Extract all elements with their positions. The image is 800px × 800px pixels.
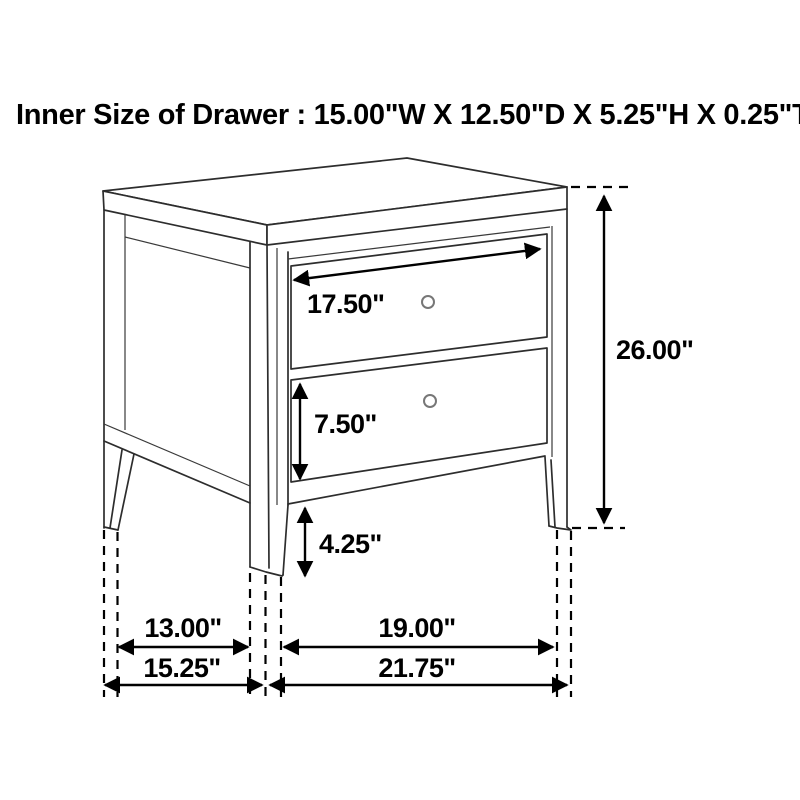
nightstand-side-panel bbox=[104, 210, 269, 568]
page-title: Inner Size of Drawer : 15.00"W X 12.50"D… bbox=[16, 99, 800, 131]
nightstand-drawing bbox=[103, 158, 571, 576]
front-right-leg-taper-b bbox=[551, 460, 555, 527]
drawer-top-knob bbox=[422, 296, 434, 308]
side-rail-top-line bbox=[104, 424, 250, 486]
label-front-leg-spacing: 19.00" bbox=[378, 613, 455, 643]
label-overall-depth: 15.25" bbox=[143, 653, 220, 683]
nightstand-top bbox=[103, 158, 567, 245]
dimension-diagram: Inner Size of Drawer : 15.00"W X 12.50"D… bbox=[0, 0, 800, 800]
label-overall-height: 26.00" bbox=[616, 335, 693, 365]
back-left-leg-bottom bbox=[104, 527, 118, 530]
label-overall-width: 21.75" bbox=[378, 653, 455, 683]
front-left-leg-taper bbox=[283, 505, 288, 575]
label-drawer-height: 7.50" bbox=[314, 409, 377, 439]
front-right-leg-bottom bbox=[549, 526, 571, 530]
label-drawer-width: 17.50" bbox=[307, 289, 384, 319]
nightstand-front bbox=[277, 209, 567, 527]
label-leg-height: 4.25" bbox=[319, 529, 382, 559]
front-right-leg-taper-a bbox=[545, 457, 549, 526]
corner-post-front-edge bbox=[267, 245, 269, 568]
drawer-bottom-knob bbox=[424, 395, 436, 407]
label-side-leg-spacing: 13.00" bbox=[144, 613, 221, 643]
front-left-leg-bottom bbox=[250, 567, 283, 576]
side-panel-top-line bbox=[125, 237, 250, 268]
